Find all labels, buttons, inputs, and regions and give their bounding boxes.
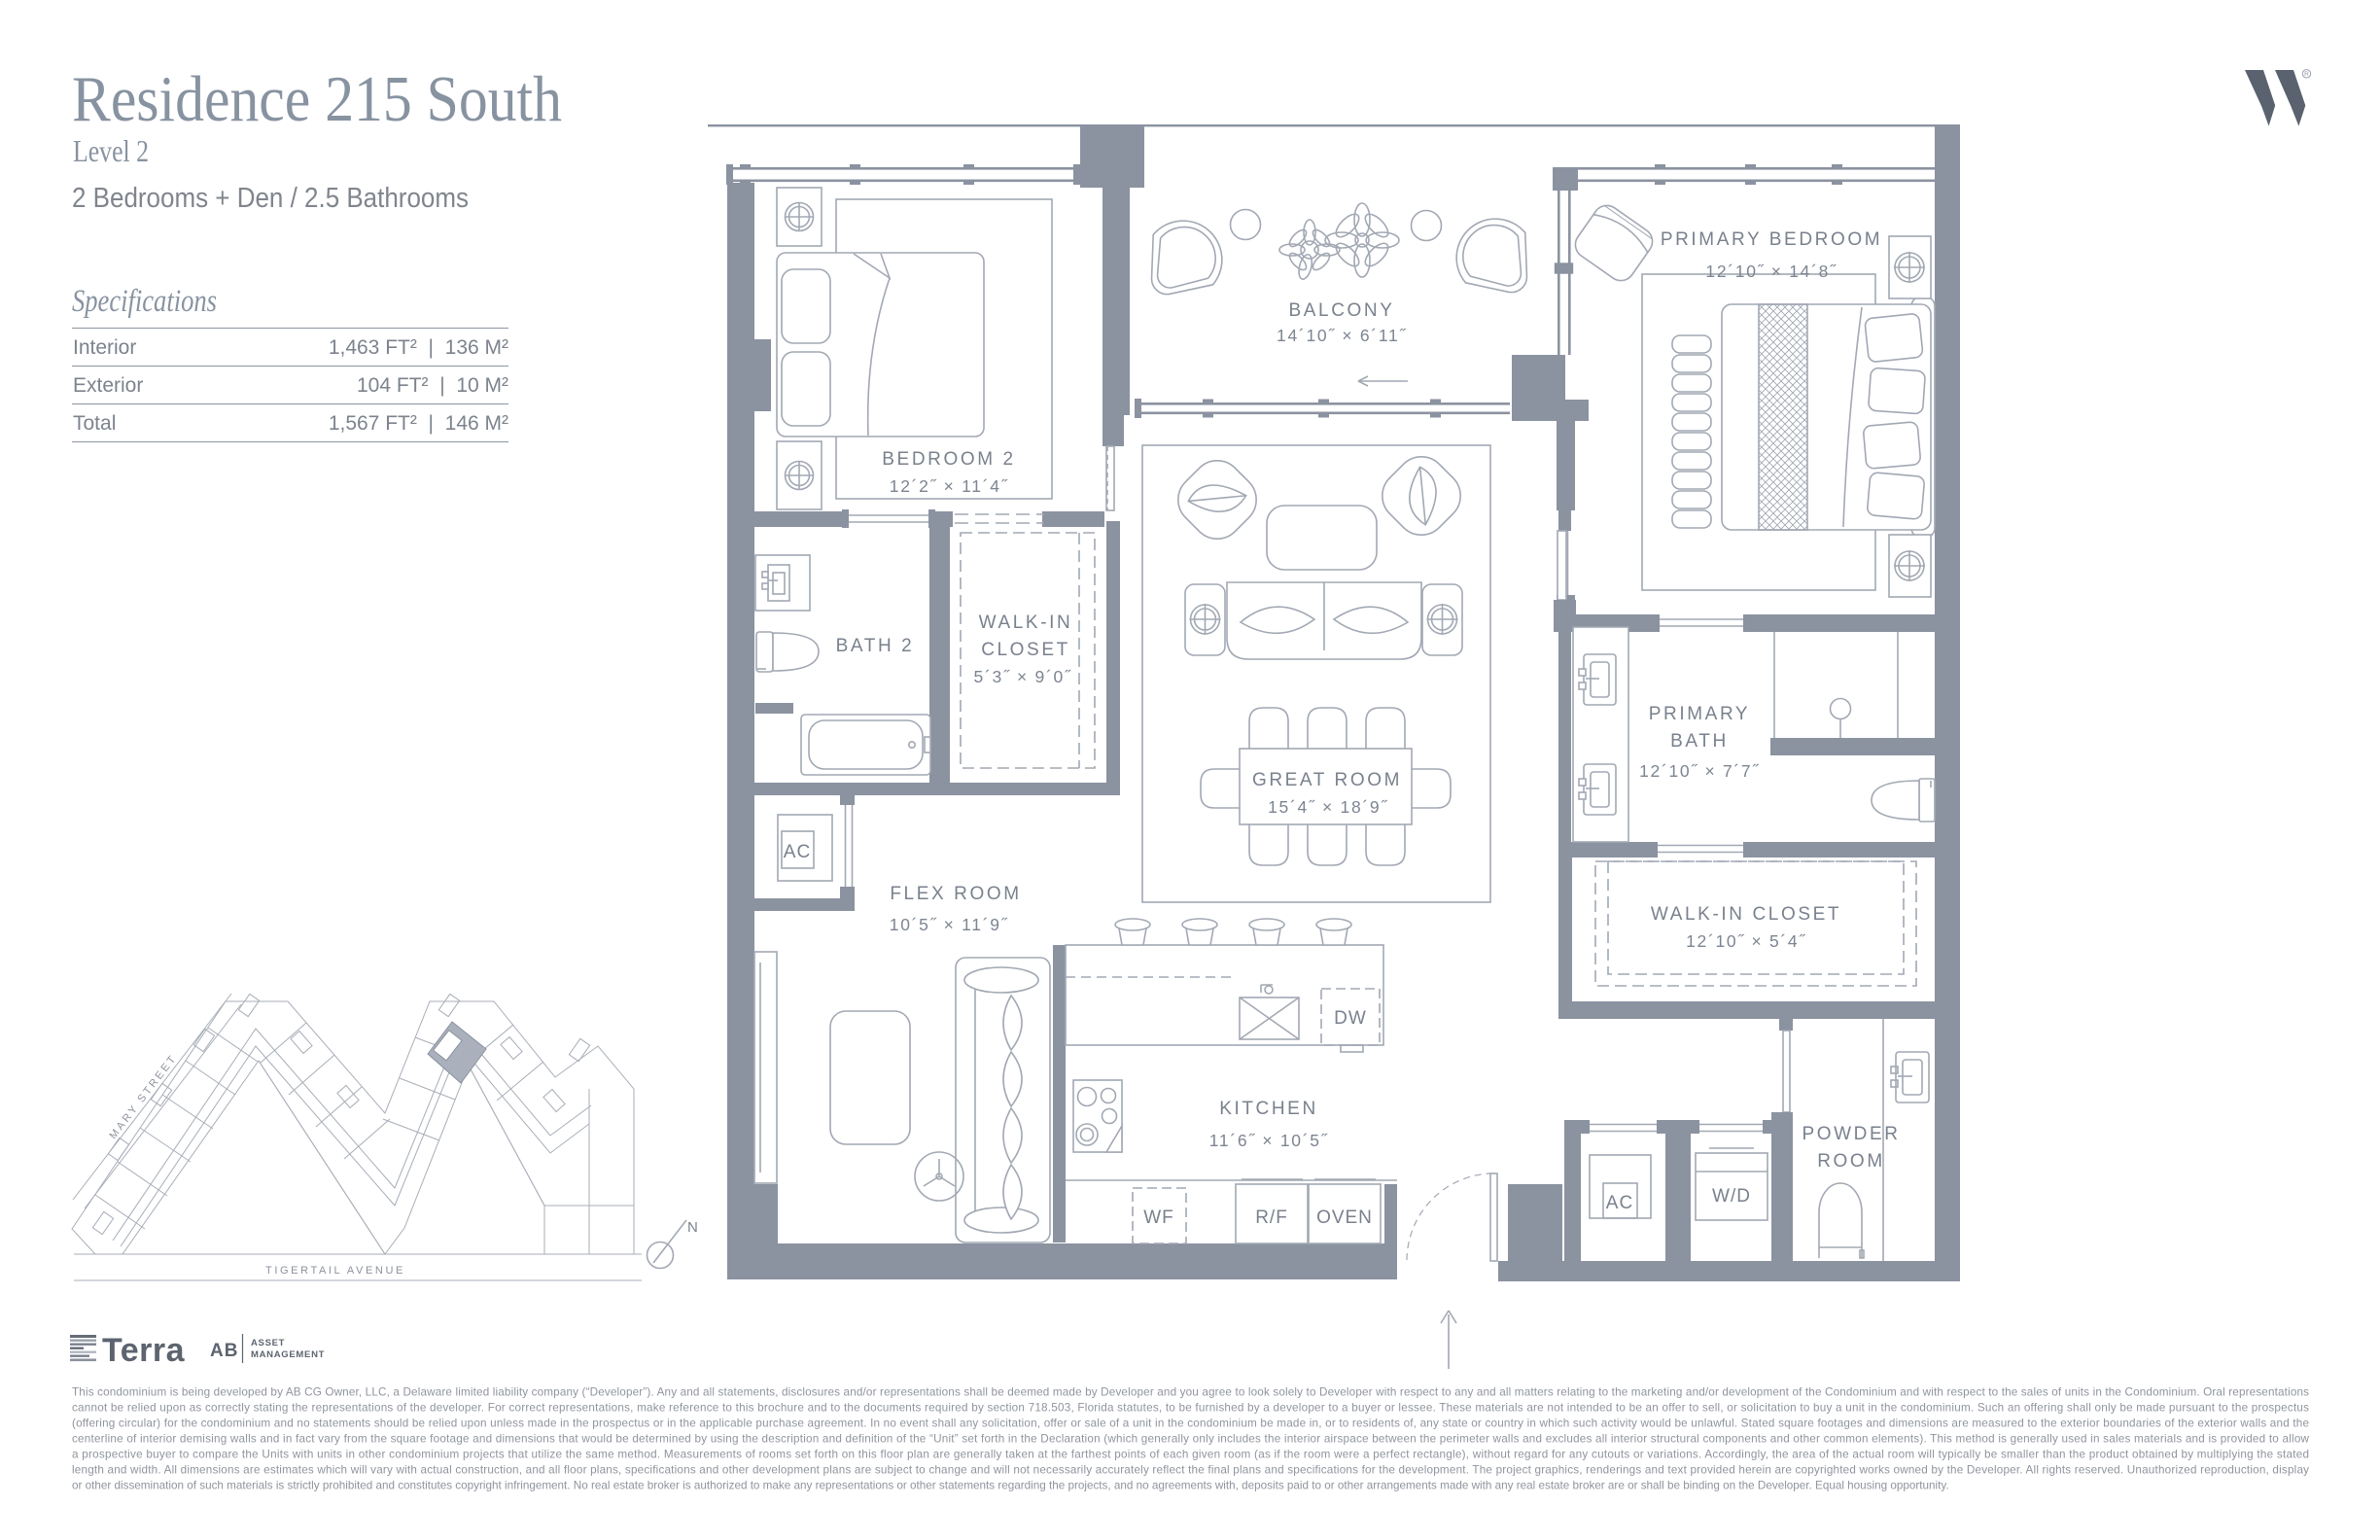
svg-text:WF: WF (1143, 1207, 1174, 1228)
svg-text:TIGERTAIL AVENUE: TIGERTAIL AVENUE (265, 1265, 405, 1277)
svg-text:12´10˝ × 7´7˝: 12´10˝ × 7´7˝ (1639, 761, 1760, 781)
svg-text:or other dissemination of such: or other dissemination of such materials… (72, 1480, 1949, 1492)
svg-text:PRIMARY: PRIMARY (1649, 704, 1750, 724)
svg-text:R/F: R/F (1255, 1207, 1288, 1228)
svg-text:W/D: W/D (1712, 1186, 1751, 1207)
svg-text:POWDER: POWDER (1802, 1124, 1900, 1144)
svg-text:WALK-IN CLOSET: WALK-IN CLOSET (1651, 904, 1841, 925)
svg-text:length and width. All dimensio: length and width. All dimensions are est… (72, 1464, 2309, 1477)
svg-text:15´4˝ × 18´9˝: 15´4˝ × 18´9˝ (1268, 797, 1388, 817)
svg-text:MANAGEMENT: MANAGEMENT (251, 1349, 325, 1360)
svg-text:Level 2: Level 2 (73, 133, 149, 168)
svg-text:12´10˝ × 14´8˝: 12´10˝ × 14´8˝ (1705, 262, 1837, 281)
svg-text:BATH: BATH (1670, 731, 1729, 752)
svg-text:(offering circular) for the co: (offering circular) for the condominium … (72, 1417, 2309, 1430)
svg-text:BATH 2: BATH 2 (836, 636, 915, 656)
svg-text:12´10˝ × 5´4˝: 12´10˝ × 5´4˝ (1686, 931, 1806, 951)
svg-text:AC: AC (1606, 1193, 1633, 1213)
svg-text:centerline of interior demisin: centerline of interior demising walls an… (72, 1433, 2310, 1446)
svg-text:Residence 215 South: Residence 215 South (72, 63, 562, 135)
svg-text:Interior: Interior (73, 336, 136, 359)
svg-text:ROOM: ROOM (1817, 1151, 1885, 1172)
svg-text:Exterior: Exterior (73, 374, 143, 397)
svg-text:1,463 FT² | 136 M²: 1,463 FT² | 136 M² (329, 336, 508, 359)
svg-text:ASSET: ASSET (251, 1338, 285, 1348)
svg-text:14´10˝ × 6´11˝: 14´10˝ × 6´11˝ (1277, 326, 1407, 345)
svg-text:PRIMARY BEDROOM: PRIMARY BEDROOM (1661, 229, 1882, 250)
svg-text:12´2˝ × 11´4˝: 12´2˝ × 11´4˝ (890, 476, 1008, 496)
svg-text:KITCHEN: KITCHEN (1219, 1099, 1318, 1119)
svg-text:DW: DW (1334, 1008, 1367, 1029)
svg-text:Specifications: Specifications (72, 284, 217, 319)
svg-text:cannot be relied upon as corre: cannot be relied upon as correctly stati… (72, 1402, 2309, 1415)
svg-text:BALCONY: BALCONY (1288, 300, 1394, 321)
svg-text:Total: Total (73, 412, 116, 435)
svg-text:AB: AB (210, 1341, 238, 1361)
svg-text:Terra: Terra (102, 1332, 186, 1369)
svg-text:11´6˝ × 10´5˝: 11´6˝ × 10´5˝ (1209, 1131, 1328, 1150)
svg-text:N: N (687, 1219, 698, 1236)
svg-text:This condominium is being deve: This condominium is being developed by A… (72, 1386, 2309, 1399)
svg-text:5´3˝ × 9´0˝: 5´3˝ × 9´0˝ (974, 667, 1072, 686)
svg-text:a prospective buyer to compare: a prospective buyer to compare the Units… (72, 1449, 2309, 1461)
svg-text:10´5˝ × 11´9˝: 10´5˝ × 11´9˝ (890, 915, 1008, 934)
svg-text:OVEN: OVEN (1316, 1207, 1373, 1228)
svg-text:WALK-IN: WALK-IN (979, 612, 1073, 633)
svg-text:BEDROOM 2: BEDROOM 2 (882, 449, 1015, 470)
svg-text:CLOSET: CLOSET (981, 640, 1070, 660)
svg-text:FLEX ROOM: FLEX ROOM (890, 884, 1021, 904)
svg-text:2 Bedrooms + Den / 2.5 Bathroo: 2 Bedrooms + Den / 2.5 Bathrooms (72, 183, 469, 214)
svg-text:AC: AC (784, 842, 811, 862)
svg-text:1,567 FT² | 146 M²: 1,567 FT² | 146 M² (329, 412, 508, 435)
svg-text:GREAT ROOM: GREAT ROOM (1252, 770, 1402, 790)
svg-text:104 FT² | 10 M²: 104 FT² | 10 M² (357, 374, 508, 397)
svg-text:R: R (2304, 71, 2309, 78)
